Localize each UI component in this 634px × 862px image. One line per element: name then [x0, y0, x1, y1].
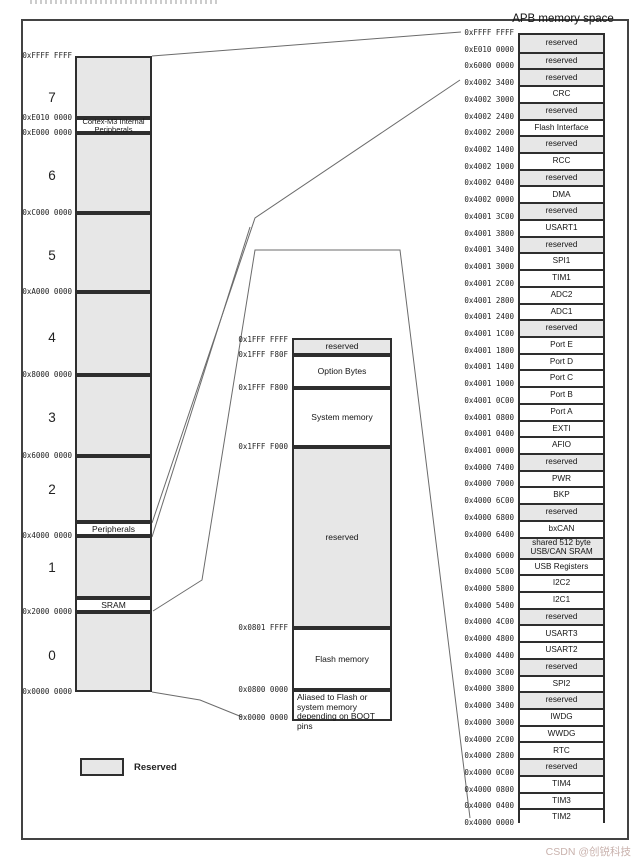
main-bar-segment [75, 612, 152, 692]
apb-row-reserved: reserved [520, 319, 603, 336]
apb-address-label: 0x4001 3C00 [450, 213, 514, 221]
apb-address-label: 0x4002 0000 [450, 196, 514, 204]
apb-row-spi1: SPI1 [520, 252, 603, 269]
apb-address-label: 0x4001 1400 [450, 363, 514, 371]
flash-detail-address-label: 0x0000 0000 [224, 714, 288, 722]
apb-address-label: 0x4000 0400 [450, 802, 514, 810]
main-bar-segment: Peripherals [75, 522, 152, 536]
apb-address-label: 0x4000 3000 [450, 719, 514, 727]
apb-address-label: 0x4000 0800 [450, 786, 514, 794]
apb-memory-space-title: APB memory space [498, 13, 628, 25]
apb-address-label: 0x4000 2C00 [450, 736, 514, 744]
watermark: CSDN @创锐科技 [546, 844, 631, 859]
apb-address-label: 0x4001 1C00 [450, 330, 514, 338]
apb-row-wwdg: WWDG [520, 725, 603, 742]
apb-row-flash-interface: Flash Interface [520, 119, 603, 136]
apb-address-label: 0x4000 3C00 [450, 669, 514, 677]
apb-address-label: 0xE010 0000 [450, 46, 514, 54]
legend-reserved-label: Reserved [134, 762, 177, 773]
main-bar-address-label: 0xA000 0000 [8, 288, 72, 296]
flash-detail-segment: System memory [292, 388, 392, 447]
apb-address-label: 0xFFFF FFFF [450, 29, 514, 37]
apb-address-label: 0x4000 6000 [450, 552, 514, 560]
apb-address-label: 0x4000 6800 [450, 514, 514, 522]
apb-row-rcc: RCC [520, 152, 603, 169]
apb-address-label: 0x4002 0400 [450, 179, 514, 187]
apb-address-label: 0x4000 3400 [450, 702, 514, 710]
region-number: 0 [35, 648, 69, 663]
region-number: 4 [35, 330, 69, 345]
apb-address-label: 0x4001 3800 [450, 230, 514, 238]
apb-address-label: 0x4001 2400 [450, 313, 514, 321]
apb-row-spi2: SPI2 [520, 675, 603, 692]
apb-row-reserved: reserved [520, 453, 603, 470]
apb-row-usart3: USART3 [520, 624, 603, 641]
apb-address-label: 0x6000 0000 [450, 62, 514, 70]
apb-address-label: 0x4000 6400 [450, 531, 514, 539]
region-number: 6 [35, 168, 69, 183]
apb-address-label: 0x4000 4800 [450, 635, 514, 643]
apb-address-label: 0x4000 3800 [450, 685, 514, 693]
apb-address-label: 0x4002 3000 [450, 96, 514, 104]
apb-address-label: 0x4001 0C00 [450, 397, 514, 405]
apb-row-port-b: Port B [520, 386, 603, 403]
region-number: 1 [35, 560, 69, 575]
region-number: 7 [35, 90, 69, 105]
apb-row-adc2: ADC2 [520, 286, 603, 303]
apb-address-label: 0x4000 2800 [450, 752, 514, 760]
apb-address-label: 0x4002 3400 [450, 79, 514, 87]
apb-row-usart2: USART2 [520, 641, 603, 658]
apb-address-label: 0x4002 2400 [450, 113, 514, 121]
apb-address-label: 0x4000 7000 [450, 480, 514, 488]
apb-row-reserved: reserved [520, 169, 603, 186]
main-bar-address-label: 0x8000 0000 [8, 371, 72, 379]
apb-row-reserved: reserved [520, 202, 603, 219]
flash-detail-address-label: 0x0800 0000 [224, 686, 288, 694]
flash-detail-segment: reserved [292, 447, 392, 628]
apb-row-usart1: USART1 [520, 219, 603, 236]
main-bar-segment [75, 56, 152, 118]
apb-row-rtc: RTC [520, 741, 603, 758]
region-number: 2 [35, 482, 69, 497]
main-bar-segment: SRAM [75, 598, 152, 612]
main-bar-address-label: 0x2000 0000 [8, 608, 72, 616]
apb-row-tim1: TIM1 [520, 269, 603, 286]
apb-row-port-d: Port D [520, 353, 603, 370]
main-bar-address-label: 0xE000 0000 [8, 129, 72, 137]
apb-row-reserved: reserved [520, 608, 603, 625]
apb-row-usb-registers: USB Registers [520, 558, 603, 575]
cropped-text-artifact [30, 0, 220, 4]
apb-address-label: 0x4002 1400 [450, 146, 514, 154]
apb-address-label: 0x4002 2000 [450, 129, 514, 137]
apb-row-reserved: reserved [520, 102, 603, 119]
flash-detail-segment: Aliased to Flash or system memory depend… [292, 690, 392, 721]
apb-row-reserved: reserved [520, 236, 603, 253]
apb-address-label: 0x4001 1000 [450, 380, 514, 388]
main-bar-segment [75, 292, 152, 375]
region-number: 5 [35, 248, 69, 263]
apb-row-pwr: PWR [520, 470, 603, 487]
apb-address-label: 0x4000 5800 [450, 585, 514, 593]
memory-map-figure: APB memory space reservedreservedreserve… [0, 0, 634, 862]
apb-address-label: 0x4001 0800 [450, 414, 514, 422]
apb-row-reserved: reserved [520, 658, 603, 675]
legend-reserved-swatch [80, 758, 124, 776]
apb-row-reserved: shared 512 byte USB/CAN SRAM [520, 537, 603, 558]
apb-address-label: 0x4001 0400 [450, 430, 514, 438]
flash-detail-segment: Flash memory [292, 628, 392, 690]
flash-detail-segment: reserved [292, 338, 392, 355]
apb-row-iwdg: IWDG [520, 708, 603, 725]
apb-row-crc: CRC [520, 85, 603, 102]
apb-row-reserved: reserved [520, 52, 603, 69]
apb-row-port-c: Port C [520, 369, 603, 386]
flash-detail-address-label: 0x1FFF F800 [224, 384, 288, 392]
apb-row-i2c1: I2C1 [520, 591, 603, 608]
main-bar-address-label: 0x0000 0000 [8, 688, 72, 696]
apb-address-label: 0x4001 1800 [450, 347, 514, 355]
main-bar-segment [75, 375, 152, 456]
apb-row-tim4: TIM4 [520, 775, 603, 792]
apb-row-port-a: Port A [520, 403, 603, 420]
apb-address-label: 0x4001 3000 [450, 263, 514, 271]
flash-detail-address-label: 0x0801 FFFF [224, 624, 288, 632]
apb-row-bkp: BKP [520, 486, 603, 503]
main-bar-segment [75, 456, 152, 522]
apb-row-port-e: Port E [520, 336, 603, 353]
apb-address-label: 0x4000 0000 [450, 819, 514, 827]
flash-detail-address-label: 0x1FFF F000 [224, 443, 288, 451]
apb-row-bxcan: bxCAN [520, 520, 603, 537]
apb-address-label: 0x4001 2800 [450, 297, 514, 305]
apb-row-exti: EXTI [520, 420, 603, 437]
apb-row-reserved: reserved [520, 68, 603, 85]
main-bar-address-label: 0x6000 0000 [8, 452, 72, 460]
apb-row-reserved: reserved [520, 135, 603, 152]
apb-address-label: 0x4001 0000 [450, 447, 514, 455]
apb-address-label: 0x4001 3400 [450, 246, 514, 254]
apb-column: reservedreservedreservedCRCreservedFlash… [518, 33, 605, 823]
apb-address-label: 0x4000 5C00 [450, 568, 514, 576]
apb-row-reserved: reserved [520, 758, 603, 775]
apb-row-reserved: reserved [520, 691, 603, 708]
apb-address-label: 0x4000 4400 [450, 652, 514, 660]
main-bar-address-label: 0xC000 0000 [8, 209, 72, 217]
flash-detail-address-label: 0x1FFF FFFF [224, 336, 288, 344]
apb-address-label: 0x4001 2C00 [450, 280, 514, 288]
apb-address-label: 0x4000 0C00 [450, 769, 514, 777]
apb-row-tim3: TIM3 [520, 792, 603, 809]
flash-detail-segment: Option Bytes [292, 355, 392, 388]
apb-row-afio: AFIO [520, 436, 603, 453]
apb-address-label: 0x4000 4C00 [450, 618, 514, 626]
main-bar-segment [75, 213, 152, 292]
main-bar-segment: Cortex-M3 Internal Peripherals [75, 118, 152, 133]
apb-address-label: 0x4000 5400 [450, 602, 514, 610]
apb-row-tim2: TIM2 [520, 808, 603, 825]
apb-row-reserved: reserved [520, 35, 603, 52]
main-bar-address-label: 0xFFFF FFFF [8, 52, 72, 60]
apb-address-label: 0x4000 6C00 [450, 497, 514, 505]
flash-detail-address-label: 0x1FFF F80F [224, 351, 288, 359]
region-number: 3 [35, 410, 69, 425]
main-bar-address-label: 0xE010 0000 [8, 114, 72, 122]
apb-row-reserved: reserved [520, 503, 603, 520]
main-bar-segment [75, 536, 152, 598]
main-bar-segment [75, 133, 152, 213]
apb-row-adc1: ADC1 [520, 303, 603, 320]
apb-row-i2c2: I2C2 [520, 574, 603, 591]
apb-address-label: 0x4002 1000 [450, 163, 514, 171]
apb-row-dma: DMA [520, 185, 603, 202]
main-bar-address-label: 0x4000 0000 [8, 532, 72, 540]
apb-address-label: 0x4000 7400 [450, 464, 514, 472]
